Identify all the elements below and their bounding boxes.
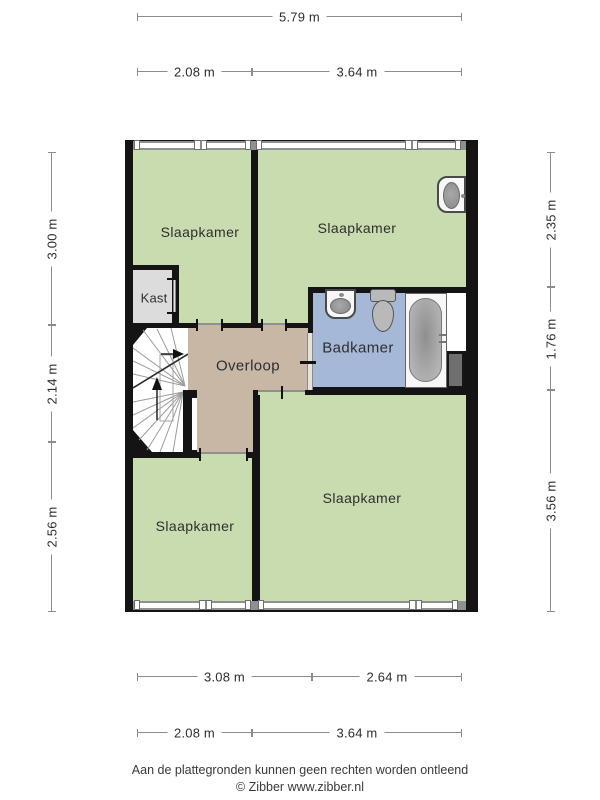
dimension-right-2: 1.76 m [550, 287, 551, 390]
door-jamb-tick [300, 361, 316, 364]
door-jamb-tick [246, 448, 248, 461]
dimension-label: 2.35 m [543, 192, 558, 247]
dimension-label: 3.64 m [330, 64, 385, 79]
dimension-label: 1.76 m [543, 311, 558, 366]
bathtub-icon [405, 293, 447, 388]
dimension-bottom-inner-right: 2.64 m [312, 676, 462, 677]
window-divider [134, 140, 140, 150]
footer-line-1: Aan de plattegronden kunnen geen rechten… [0, 762, 600, 779]
door-jamb-tick [261, 319, 263, 331]
dimension-label: 3.56 m [543, 474, 558, 529]
dimension-top-total: 5.79 m [137, 16, 462, 17]
window-pane [137, 143, 247, 148]
room-landing-lower [197, 390, 253, 452]
basin-bowl [330, 298, 351, 314]
room-bedroom-top-right [258, 150, 466, 287]
dimension-bottom-outer-right: 3.64 m [252, 732, 462, 733]
dimension-left-1: 3.00 m [51, 152, 52, 325]
door-jamb-tick [167, 278, 179, 280]
window-divider [245, 600, 251, 610]
window-divider [409, 600, 422, 610]
label-bathroom: Badkamer [322, 340, 394, 357]
door-opening-bedroom-top-right [262, 323, 287, 328]
dimension-right-3: 3.56 m [550, 390, 551, 612]
dimension-label: 2.14 m [44, 356, 59, 411]
faucet-icon [439, 341, 446, 343]
door-jamb-tick [196, 319, 198, 331]
window-divider [194, 140, 207, 150]
dimension-label: 5.79 m [272, 9, 327, 24]
door-jamb-tick [285, 319, 287, 331]
faucet-icon [439, 334, 446, 336]
dimension-label: 3.08 m [197, 669, 252, 684]
door-jamb-tick [221, 319, 223, 331]
dimension-label: 2.08 m [167, 725, 222, 740]
dimension-left-3: 2.56 m [51, 442, 52, 612]
faucet-icon [461, 194, 465, 198]
bathtub-basin [409, 298, 442, 382]
stairs-icon [133, 328, 188, 452]
dimension-label: 3.64 m [330, 725, 385, 740]
door-opening-bedroom-top-left [197, 323, 223, 328]
dimension-left-2: 2.14 m [51, 325, 52, 442]
footer-disclaimer: Aan de plattegronden kunnen geen rechten… [0, 762, 600, 796]
label-bedroom-bottom-right: Slaapkamer [323, 490, 402, 506]
dimension-bottom-inner-left: 3.08 m [137, 676, 312, 677]
door-jamb-tick [167, 312, 179, 314]
label-closet: Kast [141, 291, 168, 306]
faucet-icon [339, 293, 344, 297]
window-divider [452, 600, 458, 610]
closet-door [173, 280, 176, 314]
label-landing: Overloop [216, 358, 280, 375]
sink-icon [325, 289, 356, 319]
washbasin-icon [437, 176, 466, 213]
dimension-top-left: 2.08 m [137, 71, 252, 72]
label-bedroom-top-left: Slaapkamer [161, 224, 240, 240]
label-bedroom-top-right: Slaapkamer [318, 220, 397, 236]
dimension-label: 2.08 m [167, 64, 222, 79]
dimension-label: 3.00 m [44, 211, 59, 266]
bathroom-recess [447, 293, 466, 351]
window-divider [199, 600, 212, 610]
footer-line-2: © Zibber www.zibber.nl [0, 779, 600, 796]
basin-bowl [443, 182, 460, 209]
dimension-label: 2.56 m [44, 500, 59, 555]
window-divider [405, 140, 418, 150]
dimension-top-right: 3.64 m [252, 71, 462, 72]
stair-upper-flight [192, 398, 197, 450]
door-opening-bedroom-bottom-left [200, 452, 248, 458]
window-divider [256, 140, 262, 150]
stair-wall [183, 390, 192, 452]
duct-block [447, 352, 464, 388]
dimension-bottom-outer-left: 2.08 m [137, 732, 252, 733]
room-bedroom-top-right-extension [258, 287, 308, 323]
door-jamb-tick [199, 448, 201, 461]
window-divider [455, 140, 461, 150]
dimension-label: 2.64 m [360, 669, 415, 684]
window-pane [137, 603, 247, 608]
window-pane [259, 143, 460, 148]
door-jamb-tick [281, 386, 283, 399]
floorplan-page: 5.79 m 2.08 m 3.64 m 3.08 m 2.64 m 2.08 … [0, 0, 600, 800]
window-divider [258, 600, 264, 610]
window-divider [245, 140, 251, 150]
window-divider [134, 600, 140, 610]
window-pane [262, 603, 458, 608]
dimension-right-1: 2.35 m [550, 152, 551, 287]
label-bedroom-bottom-left: Slaapkamer [156, 518, 235, 534]
